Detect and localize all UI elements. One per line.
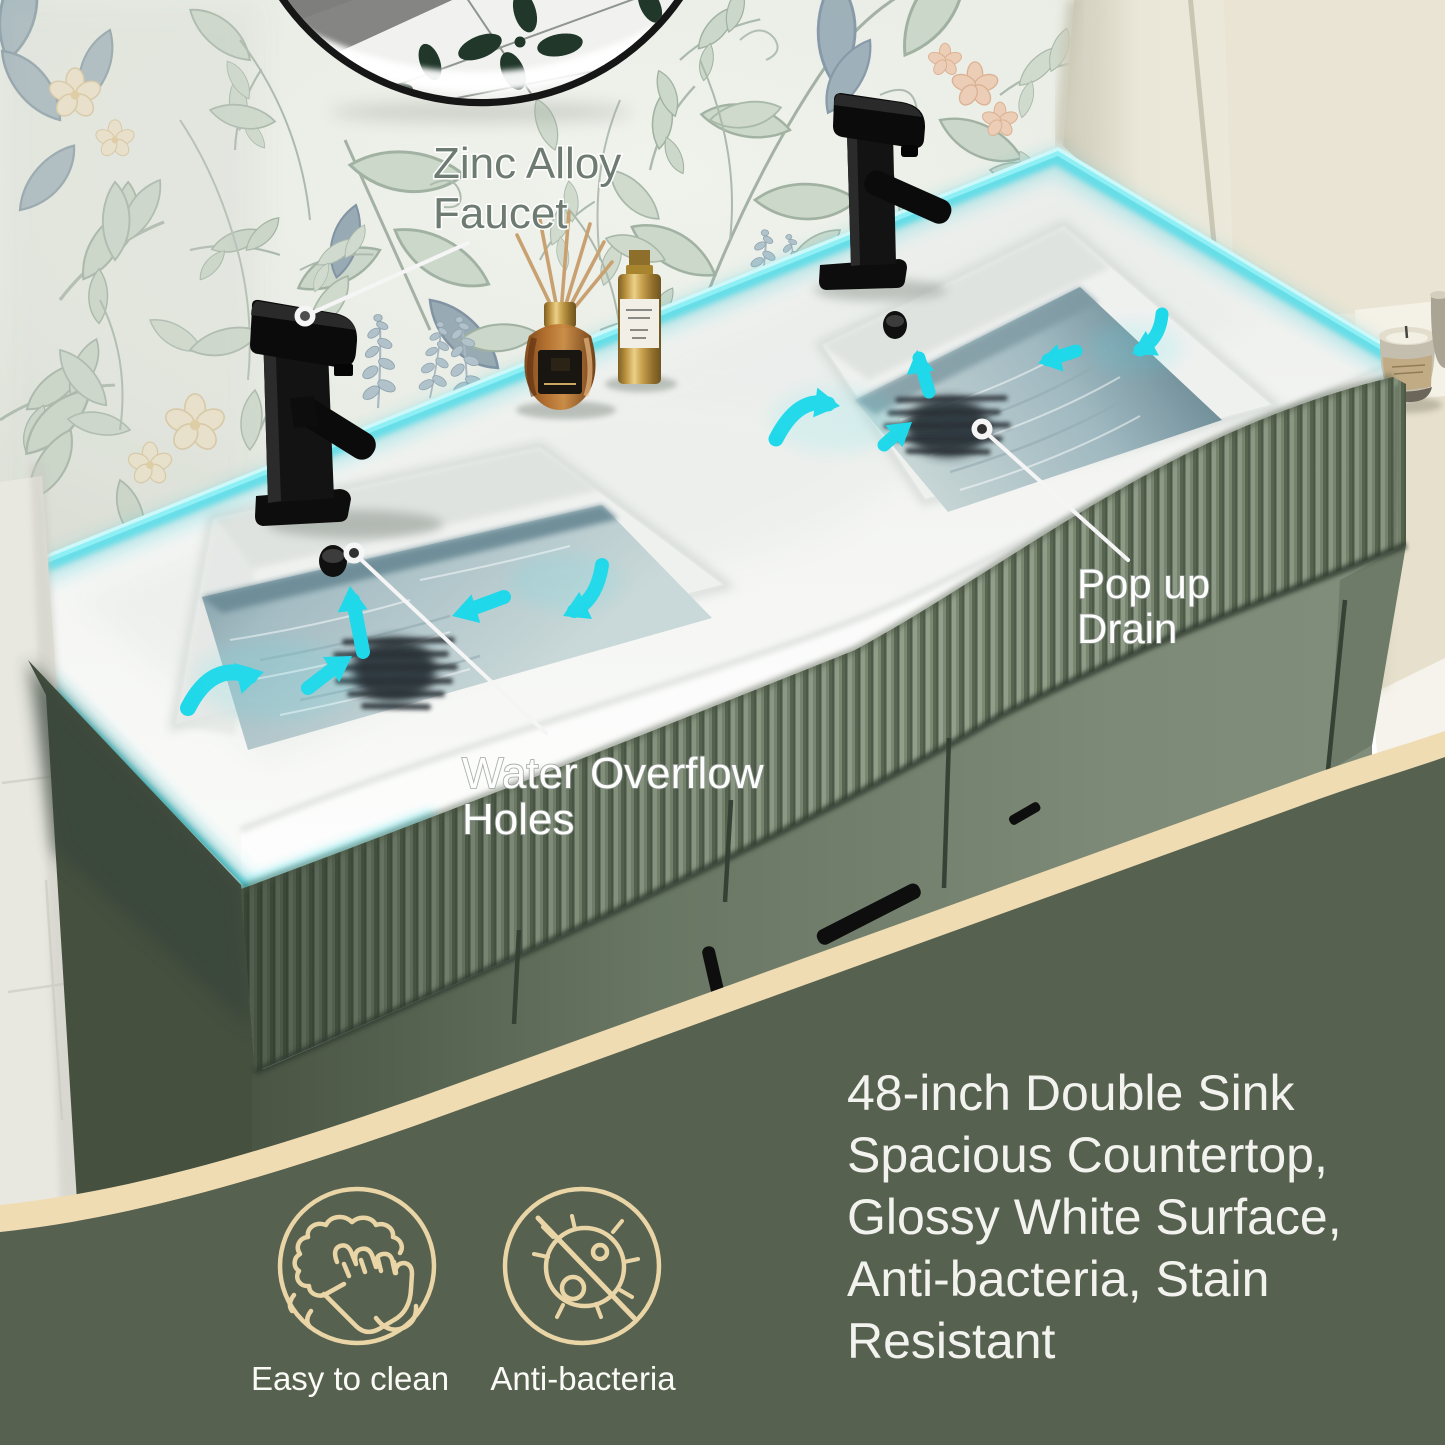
svg-text:Drain: Drain (1077, 605, 1177, 652)
svg-text:Resistant: Resistant (847, 1313, 1056, 1369)
svg-text:Water Overflow: Water Overflow (462, 749, 764, 798)
svg-text:Holes: Holes (462, 795, 575, 844)
svg-text:Easy to clean: Easy to clean (251, 1360, 449, 1397)
svg-text:48-inch Double Sink: 48-inch Double Sink (847, 1065, 1295, 1121)
svg-text:Anti-bacteria: Anti-bacteria (490, 1360, 676, 1397)
svg-text:Pop up: Pop up (1077, 560, 1210, 607)
svg-text:Faucet: Faucet (433, 189, 568, 238)
svg-text:Glossy White Surface,: Glossy White Surface, (847, 1189, 1342, 1245)
svg-text:Anti-bacteria, Stain: Anti-bacteria, Stain (847, 1251, 1269, 1307)
svg-text:Zinc Alloy: Zinc Alloy (433, 139, 621, 188)
svg-text:Spacious Countertop,: Spacious Countertop, (847, 1127, 1328, 1183)
